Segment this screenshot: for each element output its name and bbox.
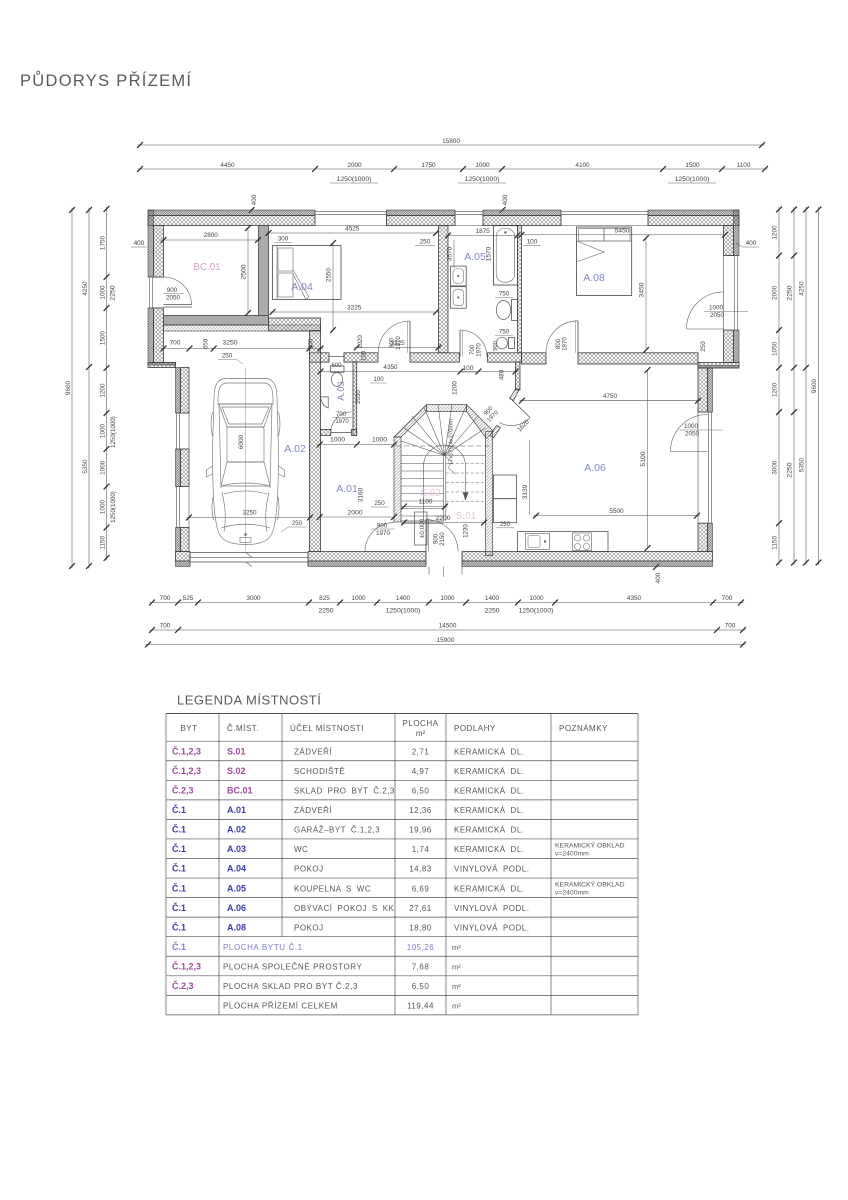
svg-text:400: 400 xyxy=(655,572,662,583)
svg-text:1750: 1750 xyxy=(99,235,106,250)
svg-text:1,74: 1,74 xyxy=(412,845,430,854)
svg-text:A.06: A.06 xyxy=(584,462,606,474)
svg-text:1970: 1970 xyxy=(335,419,349,425)
svg-text:17x179,4x270mm: 17x179,4x270mm xyxy=(449,419,455,465)
svg-text:1750: 1750 xyxy=(421,162,436,169)
svg-text:2250: 2250 xyxy=(787,462,794,477)
svg-text:2000: 2000 xyxy=(772,285,779,300)
svg-text:300: 300 xyxy=(278,236,289,243)
svg-text:1250(1000): 1250(1000) xyxy=(110,416,117,448)
svg-text:4350: 4350 xyxy=(383,364,398,371)
svg-text:1000: 1000 xyxy=(330,437,345,444)
svg-text:Č.1: Č.1 xyxy=(172,902,186,913)
svg-text:12,36: 12,36 xyxy=(409,806,432,815)
svg-text:BC.01: BC.01 xyxy=(193,262,220,273)
svg-text:250: 250 xyxy=(292,520,303,527)
svg-text:6000: 6000 xyxy=(238,434,245,449)
svg-text:1000: 1000 xyxy=(99,460,106,475)
svg-text:1000: 1000 xyxy=(99,499,106,514)
svg-text:±0,000: ±0,000 xyxy=(419,518,426,538)
svg-text:WC: WC xyxy=(294,845,308,854)
svg-text:2000: 2000 xyxy=(347,510,362,517)
svg-text:BC.01: BC.01 xyxy=(227,786,253,796)
svg-text:1500: 1500 xyxy=(99,330,106,345)
svg-text:1100: 1100 xyxy=(737,162,751,169)
svg-text:A.08: A.08 xyxy=(583,272,605,284)
svg-text:PLOCHA PŘÍZEMÍ CELKEM: PLOCHA PŘÍZEMÍ CELKEM xyxy=(223,1002,338,1011)
svg-text:2250: 2250 xyxy=(484,608,499,615)
svg-text:3450: 3450 xyxy=(639,282,646,297)
svg-text:700: 700 xyxy=(170,340,181,347)
svg-text:KERAMICKÁ DL.: KERAMICKÁ DL. xyxy=(454,845,525,854)
svg-text:5350: 5350 xyxy=(82,459,89,474)
svg-text:7,68: 7,68 xyxy=(412,962,430,971)
svg-text:S.01: S.01 xyxy=(227,746,246,756)
svg-text:900: 900 xyxy=(377,523,388,530)
svg-text:825: 825 xyxy=(319,595,330,602)
svg-text:ÚČEL MÍSTNOSTI: ÚČEL MÍSTNOSTI xyxy=(290,724,364,733)
svg-text:S.01: S.01 xyxy=(456,511,477,522)
svg-text:Č.1: Č.1 xyxy=(172,921,186,932)
svg-text:250: 250 xyxy=(222,353,233,360)
svg-text:PLOCHA BYTU Č.1: PLOCHA BYTU Č.1 xyxy=(223,943,303,952)
svg-text:1050: 1050 xyxy=(772,341,779,356)
svg-text:Č.1: Č.1 xyxy=(172,843,186,854)
svg-text:ZÁDVEŘÍ: ZÁDVEŘÍ xyxy=(294,747,332,756)
svg-text:PLOCHA: PLOCHA xyxy=(403,719,439,728)
svg-text:1200: 1200 xyxy=(772,382,779,397)
svg-text:2030: 2030 xyxy=(355,390,362,404)
svg-text:S.02: S.02 xyxy=(227,766,246,776)
svg-text:PODLAHY: PODLAHY xyxy=(454,724,496,733)
svg-text:1000: 1000 xyxy=(529,595,544,602)
svg-text:Č.1,2,3: Č.1,2,3 xyxy=(172,960,201,971)
svg-text:PLOCHA SKLAD PRO BYT Č.2,3: PLOCHA SKLAD PRO BYT Č.2,3 xyxy=(223,982,358,991)
svg-text:A.01: A.01 xyxy=(227,805,246,815)
svg-text:2,71: 2,71 xyxy=(412,747,430,756)
svg-text:A.06: A.06 xyxy=(227,903,246,913)
svg-text:A.05: A.05 xyxy=(227,883,246,893)
svg-text:1250(1000): 1250(1000) xyxy=(675,176,710,183)
svg-text:Č.1,2,3: Č.1,2,3 xyxy=(172,745,201,756)
svg-text:3570: 3570 xyxy=(447,246,454,261)
svg-text:100: 100 xyxy=(463,365,474,372)
svg-text:250: 250 xyxy=(700,341,707,352)
svg-text:1000: 1000 xyxy=(372,437,387,444)
svg-text:2050: 2050 xyxy=(166,295,181,302)
svg-text:KERAMICKÁ DL.: KERAMICKÁ DL. xyxy=(454,787,525,796)
svg-text:4450: 4450 xyxy=(220,162,235,169)
svg-text:1250(1000): 1250(1000) xyxy=(337,176,372,183)
svg-text:15800: 15800 xyxy=(442,138,460,145)
svg-text:3225: 3225 xyxy=(347,305,362,312)
svg-text:5350: 5350 xyxy=(799,458,806,473)
svg-text:A.02: A.02 xyxy=(227,825,246,835)
svg-text:KERAMICKÁ DL.: KERAMICKÁ DL. xyxy=(454,884,525,893)
svg-text:4250: 4250 xyxy=(799,281,806,296)
svg-text:100: 100 xyxy=(362,350,368,361)
svg-text:SCHODIŠTĚ: SCHODIŠTĚ xyxy=(294,767,345,776)
svg-text:BYT: BYT xyxy=(180,724,197,733)
svg-text:1970: 1970 xyxy=(376,530,391,537)
svg-text:A.08: A.08 xyxy=(227,922,246,932)
svg-text:v=2400mm: v=2400mm xyxy=(555,890,589,897)
svg-text:A.01: A.01 xyxy=(336,483,358,495)
svg-text:1000: 1000 xyxy=(99,285,106,300)
svg-text:A.03: A.03 xyxy=(227,844,246,854)
svg-text:KERAMICKÁ DL.: KERAMICKÁ DL. xyxy=(454,767,525,776)
svg-text:1200: 1200 xyxy=(99,383,106,398)
svg-text:ZÁDVEŘÍ: ZÁDVEŘÍ xyxy=(294,806,332,815)
svg-text:250: 250 xyxy=(374,500,385,507)
svg-text:Č.2,3: Č.2,3 xyxy=(172,785,194,796)
svg-text:2200: 2200 xyxy=(435,515,450,522)
svg-text:1100: 1100 xyxy=(419,499,433,506)
svg-text:GARÁŽ–BYT Č.1,2,3: GARÁŽ–BYT Č.1,2,3 xyxy=(294,826,380,835)
svg-text:Č.1: Č.1 xyxy=(172,804,186,815)
svg-text:1000: 1000 xyxy=(440,595,455,602)
svg-text:3225: 3225 xyxy=(390,340,405,347)
svg-text:1230: 1230 xyxy=(463,524,470,538)
svg-text:1200: 1200 xyxy=(772,225,779,240)
svg-text:Č.2,3: Č.2,3 xyxy=(172,980,194,991)
svg-text:KERAMICKÝ OBKLAD: KERAMICKÝ OBKLAD xyxy=(555,840,625,849)
svg-text:Č.MÍST.: Č.MÍST. xyxy=(227,724,259,733)
svg-text:19,96: 19,96 xyxy=(409,826,432,835)
svg-text:A.05: A.05 xyxy=(464,251,486,263)
svg-text:700: 700 xyxy=(336,412,347,418)
svg-text:100: 100 xyxy=(373,376,384,383)
svg-text:9600: 9600 xyxy=(65,380,72,395)
svg-text:2250: 2250 xyxy=(787,285,794,300)
svg-text:750: 750 xyxy=(499,291,510,298)
svg-text:2550: 2550 xyxy=(326,267,333,282)
svg-text:KOUPELNA S WC: KOUPELNA S WC xyxy=(294,884,371,893)
svg-text:1500: 1500 xyxy=(685,162,700,169)
svg-text:1250(1000): 1250(1000) xyxy=(386,608,421,615)
svg-text:750: 750 xyxy=(499,329,510,336)
svg-text:400: 400 xyxy=(746,240,757,247)
svg-text:PŮDORYS PŘÍZEMÍ: PŮDORYS PŘÍZEMÍ xyxy=(20,71,192,90)
svg-text:KERAMICKÁ DL.: KERAMICKÁ DL. xyxy=(454,826,525,835)
svg-text:18,80: 18,80 xyxy=(409,923,432,932)
svg-text:v=2400mm: v=2400mm xyxy=(555,850,589,857)
svg-text:1000: 1000 xyxy=(709,305,724,312)
svg-text:m²: m² xyxy=(452,962,461,971)
svg-text:Č.1: Č.1 xyxy=(172,882,186,893)
svg-text:4750: 4750 xyxy=(603,393,618,400)
svg-text:14500: 14500 xyxy=(439,623,457,630)
svg-text:1970: 1970 xyxy=(477,343,483,357)
svg-text:480: 480 xyxy=(499,369,506,380)
svg-text:POZNÁMKY: POZNÁMKY xyxy=(559,724,608,733)
svg-text:A.02: A.02 xyxy=(284,443,306,455)
svg-text:Č.1,2,3: Č.1,2,3 xyxy=(172,765,201,776)
svg-text:4100: 4100 xyxy=(575,162,590,169)
svg-text:650: 650 xyxy=(203,338,210,349)
svg-text:2150: 2150 xyxy=(440,532,446,546)
svg-text:700: 700 xyxy=(160,623,171,630)
svg-text:2800: 2800 xyxy=(204,232,219,239)
svg-text:2050: 2050 xyxy=(685,431,700,438)
svg-text:OBÝVACÍ POKOJ S KK: OBÝVACÍ POKOJ S KK xyxy=(294,904,395,913)
svg-text:250: 250 xyxy=(500,521,511,528)
svg-text:3160: 3160 xyxy=(358,487,365,502)
svg-text:3250: 3250 xyxy=(222,340,237,347)
svg-text:1875: 1875 xyxy=(476,228,491,235)
svg-text:4250: 4250 xyxy=(82,281,89,296)
svg-text:1250(1000): 1250(1000) xyxy=(110,491,117,523)
svg-text:300: 300 xyxy=(308,338,315,349)
svg-text:1000: 1000 xyxy=(475,162,490,169)
svg-text:4525: 4525 xyxy=(345,226,360,233)
svg-text:1400: 1400 xyxy=(485,595,500,602)
svg-text:KERAMICKÁ DL.: KERAMICKÁ DL. xyxy=(454,747,525,756)
svg-text:m²: m² xyxy=(452,982,461,991)
svg-text:100: 100 xyxy=(527,239,538,246)
svg-text:1400: 1400 xyxy=(396,595,411,602)
svg-text:1970: 1970 xyxy=(563,337,569,351)
svg-text:700: 700 xyxy=(722,595,733,602)
svg-text:Č.1: Č.1 xyxy=(172,824,186,835)
svg-text:2250: 2250 xyxy=(110,285,117,300)
svg-text:m²: m² xyxy=(452,943,461,952)
svg-text:4,97: 4,97 xyxy=(412,767,430,776)
svg-text:1570: 1570 xyxy=(486,246,493,261)
svg-text:POKOJ: POKOJ xyxy=(294,923,324,932)
svg-text:27,61: 27,61 xyxy=(409,904,432,913)
svg-text:700: 700 xyxy=(160,595,171,602)
svg-text:KERAMICKÁ DL.: KERAMICKÁ DL. xyxy=(454,806,525,815)
svg-text:1250(1000): 1250(1000) xyxy=(519,608,554,615)
svg-text:14,83: 14,83 xyxy=(409,865,432,874)
svg-text:2000: 2000 xyxy=(347,162,362,169)
svg-text:1200: 1200 xyxy=(452,381,459,395)
svg-text:9600: 9600 xyxy=(811,378,818,393)
svg-text:105,26: 105,26 xyxy=(407,943,435,952)
svg-text:VINYLOVÁ PODL.: VINYLOVÁ PODL. xyxy=(454,865,529,874)
svg-text:PLOCHA SPOLEČNÉ PROSTORY: PLOCHA SPOLEČNÉ PROSTORY xyxy=(223,962,363,971)
svg-text:6,50: 6,50 xyxy=(412,982,430,991)
svg-text:1000: 1000 xyxy=(351,595,366,602)
svg-text:3000: 3000 xyxy=(772,460,779,475)
svg-text:3250: 3250 xyxy=(242,510,257,517)
svg-text:KERAMICKÝ OBKLAD: KERAMICKÝ OBKLAD xyxy=(555,880,625,889)
svg-text:400: 400 xyxy=(502,194,509,205)
svg-text:4350: 4350 xyxy=(627,595,642,602)
svg-text:800: 800 xyxy=(556,338,562,349)
svg-text:POKOJ: POKOJ xyxy=(294,865,324,874)
svg-text:1000: 1000 xyxy=(684,423,699,430)
svg-text:m²: m² xyxy=(416,729,426,738)
svg-text:3139: 3139 xyxy=(522,484,529,499)
svg-text:1150: 1150 xyxy=(772,536,779,550)
svg-text:525: 525 xyxy=(183,595,194,602)
svg-text:Č.1: Č.1 xyxy=(172,863,186,874)
svg-text:3000: 3000 xyxy=(246,595,261,602)
svg-text:5500: 5500 xyxy=(609,508,624,515)
svg-text:VINYLOVÁ PODL.: VINYLOVÁ PODL. xyxy=(454,904,529,913)
svg-text:700: 700 xyxy=(725,623,736,630)
svg-text:SKLAD PRO BYT Č.2,3: SKLAD PRO BYT Č.2,3 xyxy=(294,787,395,796)
svg-text:5100: 5100 xyxy=(640,451,647,466)
svg-text:A.04: A.04 xyxy=(227,864,246,874)
svg-text:15900: 15900 xyxy=(437,637,455,644)
svg-text:VINYLOVÁ PODL.: VINYLOVÁ PODL. xyxy=(454,923,529,932)
svg-text:700: 700 xyxy=(470,344,476,355)
svg-text:2500: 2500 xyxy=(241,264,248,279)
svg-text:1000: 1000 xyxy=(99,423,106,438)
svg-text:6,50: 6,50 xyxy=(412,787,430,796)
svg-text:900: 900 xyxy=(167,287,178,294)
svg-text:119,44: 119,44 xyxy=(407,1002,434,1011)
svg-text:900: 900 xyxy=(493,341,499,351)
svg-text:m²: m² xyxy=(452,1002,461,1011)
svg-text:2250: 2250 xyxy=(318,608,333,615)
svg-text:400: 400 xyxy=(251,194,258,205)
svg-text:1150: 1150 xyxy=(99,535,106,549)
svg-text:400: 400 xyxy=(134,240,145,247)
svg-text:LEGENDA MÍSTNOSTÍ: LEGENDA MÍSTNOSTÍ xyxy=(177,693,321,708)
svg-text:900: 900 xyxy=(434,533,440,544)
svg-text:250: 250 xyxy=(420,239,431,246)
svg-text:6,69: 6,69 xyxy=(412,884,430,893)
svg-text:Č.1: Č.1 xyxy=(172,941,186,952)
svg-text:S.02: S.02 xyxy=(420,488,441,499)
svg-text:2050: 2050 xyxy=(710,312,725,319)
svg-text:1250(1000): 1250(1000) xyxy=(465,176,500,183)
